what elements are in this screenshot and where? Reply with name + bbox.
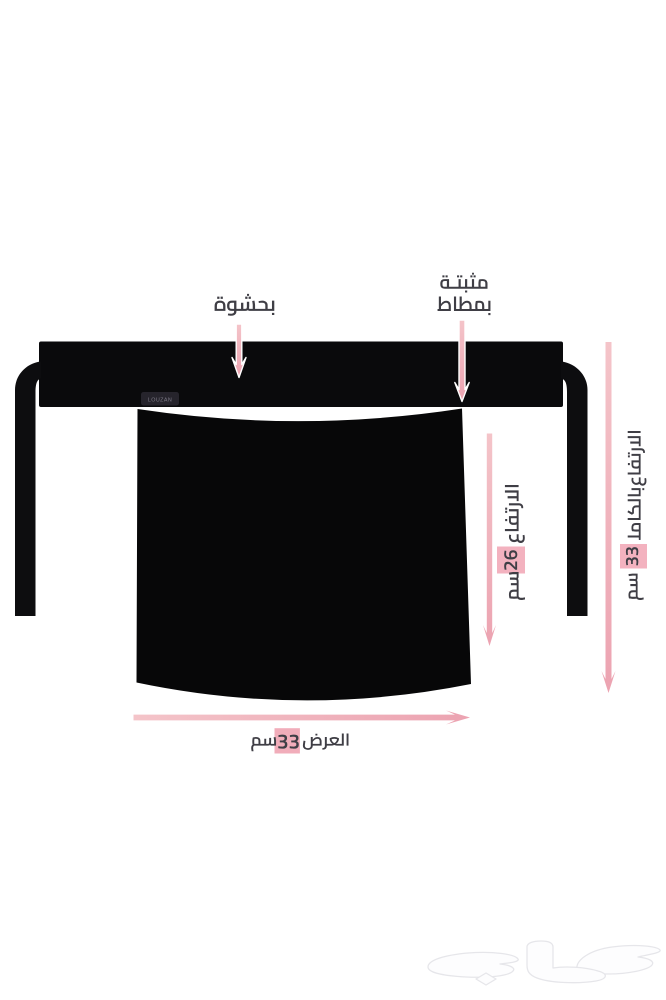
svg-text:LOUZAN: LOUZAN bbox=[148, 397, 172, 403]
